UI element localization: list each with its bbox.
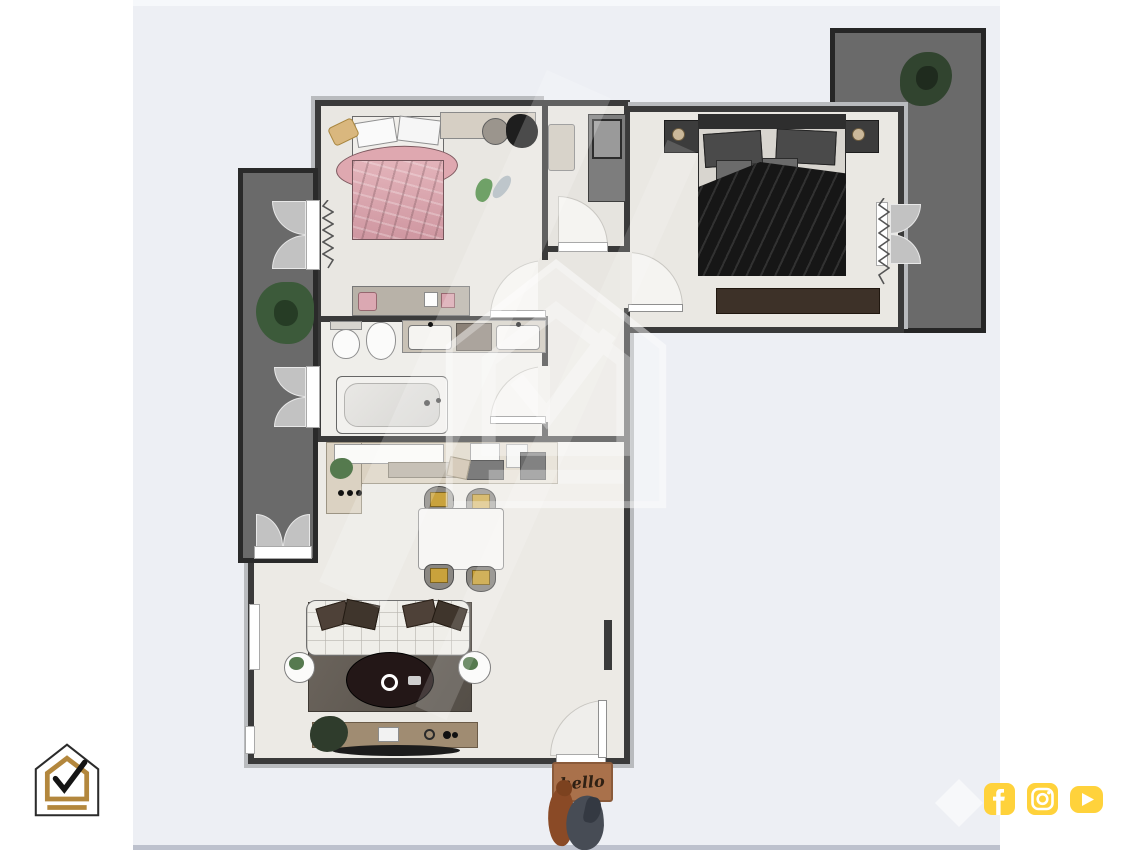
panel-bottom-strip — [133, 845, 1000, 850]
balcony-door-sill-bathroom — [306, 366, 320, 428]
pink-blanket — [352, 160, 444, 240]
coffee-table-tray — [381, 674, 398, 691]
panel-top-strip — [133, 0, 1000, 6]
house-check-logo[interactable] — [33, 742, 101, 818]
curtain-zigzag — [322, 200, 334, 270]
tv — [332, 745, 460, 756]
curtain-zigzag — [878, 198, 890, 286]
console-speaker — [378, 727, 399, 742]
master-headboard — [698, 114, 846, 129]
facebook-icon[interactable] — [984, 783, 1015, 815]
lamp-left — [672, 128, 685, 141]
bed-pillow — [397, 116, 442, 146]
pink-stool — [358, 292, 377, 311]
living-window-small — [245, 726, 255, 754]
radiator — [604, 620, 612, 670]
console-decor-ring — [424, 729, 435, 740]
toilet — [332, 329, 360, 359]
chair-cushion — [430, 568, 448, 583]
house-check-watermark — [440, 242, 672, 526]
bench-rug — [716, 288, 880, 314]
storage-box-white — [424, 292, 438, 307]
desk-chair — [482, 118, 509, 145]
living-window — [249, 604, 260, 670]
black-blanket — [698, 162, 846, 276]
balcony-door-sill-living — [254, 546, 312, 559]
page: hello — [0, 0, 1133, 850]
instagram-icon[interactable] — [1027, 783, 1058, 815]
balcony-plant-core — [274, 300, 298, 326]
youtube-icon[interactable] — [1070, 786, 1103, 813]
balcony-door-sill-bedroom — [306, 200, 320, 270]
coffee-table-book — [408, 676, 421, 685]
entry-door-leaf — [598, 700, 607, 758]
lamp-right — [852, 128, 865, 141]
bidet — [366, 322, 396, 360]
